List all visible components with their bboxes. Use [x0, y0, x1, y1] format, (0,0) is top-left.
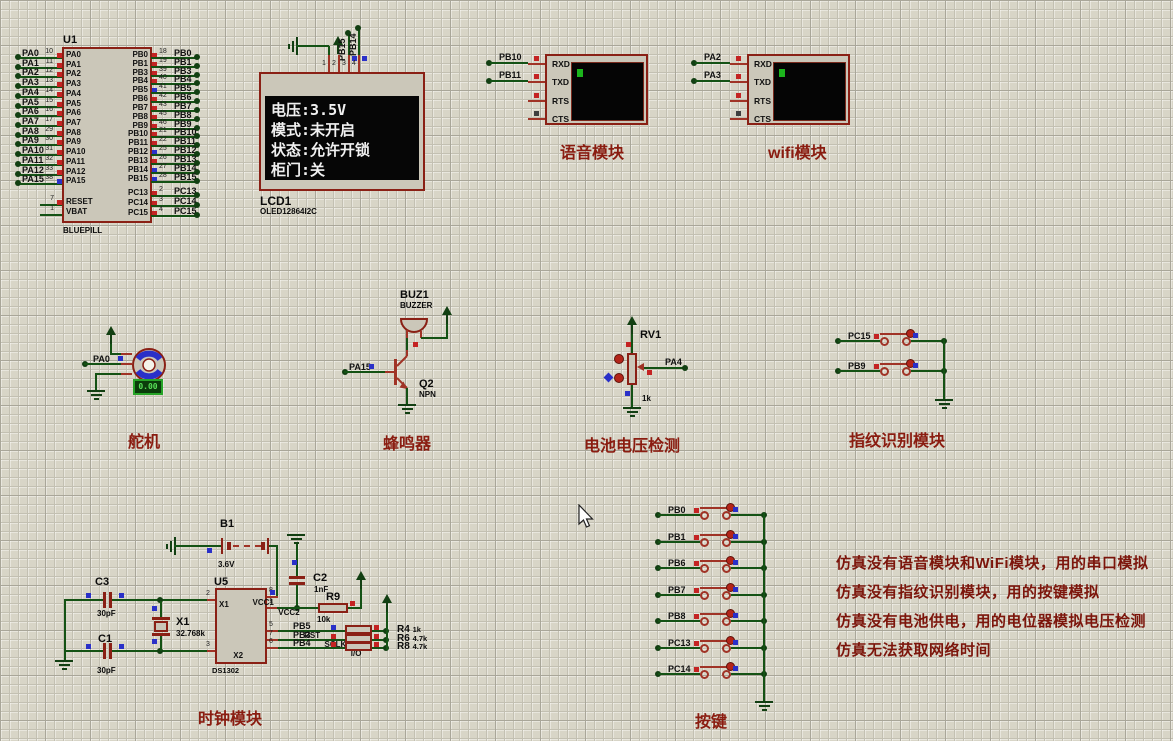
wire: [731, 567, 765, 569]
pin-state-square: [57, 160, 62, 165]
pin-name: RXD: [754, 59, 772, 69]
pin-state-square: [57, 72, 62, 77]
pin-state-square: [733, 587, 738, 592]
pin-state-square: [57, 82, 62, 87]
wire: [731, 647, 765, 649]
pin-state-square: [57, 121, 62, 126]
net-label: PB11: [499, 70, 521, 80]
pin-state-square: [57, 170, 62, 175]
pin-stub: [730, 63, 747, 65]
c3-ref: C3: [95, 576, 109, 588]
fingerprint-key-rows: PC15 PB9: [838, 329, 948, 389]
pin-number: 39: [159, 66, 167, 73]
mouse-cursor: [578, 504, 595, 529]
net-label: PA2: [704, 52, 721, 62]
pin-number: 5: [269, 621, 273, 628]
wire: [658, 567, 700, 569]
note-line: 仿真没有指纹识别模块，用的按键模拟: [836, 581, 1149, 610]
wire: [64, 599, 66, 652]
pin-name: TXD: [754, 77, 771, 87]
pin-state-square: [331, 634, 336, 639]
wire: [64, 599, 104, 601]
pin-number: 33: [45, 165, 53, 172]
pin-number: 22: [159, 136, 167, 143]
wire: [658, 514, 700, 516]
pin-state-square: [534, 74, 539, 79]
pin-state-square: [86, 644, 91, 649]
pin-state-square: [331, 625, 336, 630]
net-label: PB4: [293, 638, 311, 648]
pin-name: PB11: [106, 138, 148, 147]
pin-state-square: [86, 593, 91, 598]
section-title: wifi模块: [768, 139, 827, 163]
wire: [658, 541, 700, 543]
pin-name: RESET: [66, 197, 106, 207]
net-label: PB10: [499, 52, 522, 62]
terminal-pin-row[interactable]: RTS: [528, 91, 588, 109]
button-terminal: [880, 367, 889, 376]
pin-name: PB4: [106, 76, 148, 85]
wire: [160, 636, 162, 651]
push-button-row: PB1: [658, 530, 768, 557]
pin-number: 14: [45, 87, 53, 94]
pin-state-square: [57, 102, 62, 107]
u1-right-pin-row[interactable]: 28 PB15: [152, 174, 198, 183]
pin-name: PB10: [106, 129, 148, 138]
button-terminal: [722, 617, 731, 626]
wire: [278, 639, 345, 641]
button-terminal: [722, 644, 731, 653]
wire: [278, 630, 345, 632]
u1-power-pin-rows: 7 1: [40, 197, 62, 217]
wire: [296, 45, 329, 47]
pin-state-square: [152, 639, 157, 644]
pin-name: PA4: [66, 89, 106, 99]
pin-state-square: [57, 111, 62, 116]
pin-number: 27: [159, 163, 167, 170]
pot-marker: [604, 373, 614, 383]
pin-state-square: [694, 561, 699, 566]
wire: [695, 80, 730, 82]
terminal-pin-row[interactable]: RXD: [730, 54, 790, 72]
pin-number: 45: [159, 110, 167, 117]
pin-name: PB3: [106, 68, 148, 77]
pin-number: 3: [159, 196, 163, 203]
button-terminal: [722, 538, 731, 547]
pin-stub: [348, 55, 350, 72]
ground-symbol: [753, 701, 775, 713]
r9-ref: R9: [326, 591, 340, 603]
pin-state-square: [57, 92, 62, 97]
pin-name: PA9: [66, 137, 106, 147]
wire: [386, 612, 388, 650]
button-terminal: [902, 367, 911, 376]
pot-decrease-knob[interactable]: [614, 373, 624, 383]
net-label: PB14: [348, 28, 358, 56]
pin-state-square: [534, 56, 539, 61]
battery-plate[interactable]: [261, 542, 265, 550]
push-button-row: PC13: [658, 636, 768, 663]
pin-state-square: [733, 507, 738, 512]
pin-stub: [267, 647, 278, 649]
pin-name: PB5: [106, 85, 148, 94]
pin-number: 32: [45, 155, 53, 162]
pot-value: 1k: [642, 394, 651, 403]
pin-state-square: [369, 364, 374, 369]
wire: [406, 396, 408, 404]
pin-name: PB14: [106, 165, 148, 174]
pin-number: 12: [45, 67, 53, 74]
pin-number: 28: [159, 172, 167, 179]
push-button-row: PB7: [658, 583, 768, 610]
pin-number: 2: [206, 590, 210, 597]
wire: [360, 589, 362, 609]
pin-state-square: [733, 534, 738, 539]
section-title: 指纹识别模块: [849, 427, 945, 451]
u1-ref: U1: [63, 34, 77, 46]
net-label: PA0: [93, 354, 110, 364]
lcd-screen-line: 电压:3.5V: [271, 99, 370, 119]
section-title: 舵机: [128, 428, 160, 452]
xtal-ref: X1: [176, 616, 189, 628]
pin-name: PC15: [106, 208, 148, 218]
wire: [151, 181, 196, 183]
pin-name: CTS: [552, 114, 569, 124]
resistor-label: R8 4.7k: [397, 641, 427, 652]
button-terminal: [700, 617, 709, 626]
pin-state-square: [57, 53, 62, 58]
simulation-notes: 仿真没有语音模块和WiFi模块，用的串口模拟仿真没有指纹识别模块，用的按键模拟仿…: [836, 552, 1149, 668]
pin-number: 26: [159, 154, 167, 161]
button-terminal: [700, 511, 709, 520]
pin-state-square: [292, 560, 297, 565]
button-terminal: [722, 511, 731, 520]
wire: [763, 513, 765, 701]
pin-state-square: [736, 111, 741, 116]
transistor-value: NPN: [419, 390, 436, 399]
push-button-row: PB0: [658, 503, 768, 530]
wire-junction-dot: [194, 212, 200, 218]
section-title: 语音模块: [560, 139, 624, 163]
c1-value: 30pF: [97, 666, 116, 675]
net-label: PA4: [665, 357, 682, 367]
pin-number: 31: [45, 145, 53, 152]
lcd-screen-lines: 电压:3.5V模式:未开启状态:允许开锁柜门:关: [271, 99, 370, 179]
pin-number: 3: [342, 60, 346, 67]
button-terminal: [700, 670, 709, 679]
pin-name: PB12: [106, 147, 148, 156]
pin-number: 29: [45, 126, 53, 133]
pin-number: 7: [50, 195, 54, 202]
pin-number: 30: [45, 135, 53, 142]
terminal-pin-row[interactable]: CTS: [730, 109, 790, 127]
pin-state-square: [694, 667, 699, 672]
pin-number: 4: [352, 60, 356, 67]
pin-state-square: [57, 210, 62, 215]
terminal-pin-rows: RXD TXD RTS CTS: [528, 54, 588, 128]
push-button-row: PC14: [658, 662, 768, 689]
ground-symbol: [396, 404, 418, 416]
ground-symbol: [933, 399, 955, 411]
ground-symbol: [85, 390, 107, 402]
push-button-row: PB8: [658, 609, 768, 636]
pin-number: 17: [45, 116, 53, 123]
pin-stub: [730, 118, 747, 120]
pin-stub: [528, 81, 545, 83]
pin-state-square: [57, 179, 62, 184]
wire: [644, 367, 684, 369]
pin-state-square: [119, 593, 124, 598]
lcd-screen-line: 状态:允许开锁: [271, 139, 370, 159]
push-button-row: PB9: [838, 359, 948, 389]
wire: [490, 62, 528, 64]
pin-number: 2: [332, 60, 336, 67]
wire: [731, 594, 765, 596]
pin-state-square: [57, 131, 62, 136]
wire: [731, 541, 765, 543]
pin-stub: [528, 100, 545, 102]
pin-state-square: [694, 508, 699, 513]
lcd-value: OLED12864I2C: [260, 207, 317, 216]
capacitor-plate[interactable]: [103, 592, 106, 608]
button-terminal: [722, 564, 731, 573]
section-title: 电池电压检测: [584, 432, 680, 456]
section-title: 按键: [695, 708, 727, 732]
pin-state-square: [57, 63, 62, 68]
pin-number: 42: [159, 92, 167, 99]
lcd-ref: LCD1: [260, 194, 291, 208]
pin-state-square: [733, 666, 738, 671]
pin-name: PB0: [106, 50, 148, 59]
wire: [658, 620, 700, 622]
pin-name: PA3: [66, 79, 106, 89]
wire: [838, 370, 880, 372]
pin-name: RXD: [552, 59, 570, 69]
wire: [943, 339, 945, 399]
capacitor-plate[interactable]: [289, 576, 305, 579]
button-terminal: [722, 670, 731, 679]
pin-name: PA10: [66, 147, 106, 157]
net-label: PA15: [349, 362, 371, 372]
terminal-pin-row[interactable]: TXD: [528, 72, 588, 90]
c1-ref: C1: [98, 633, 112, 645]
pin-number: 10: [45, 48, 53, 55]
pin-state-square: [57, 150, 62, 155]
note-line: 仿真没有语音模块和WiFi模块，用的串口模拟: [836, 552, 1149, 581]
u1-left-pin-row[interactable]: PA15 38: [18, 176, 62, 186]
power-arrow: [380, 594, 394, 612]
pin-stub: [207, 650, 215, 652]
pin-state-square: [874, 364, 879, 369]
button-terminal: [880, 337, 889, 346]
pin-name: PA0: [66, 50, 106, 60]
button-terminal: [700, 538, 709, 547]
pin-state-square: [694, 614, 699, 619]
wire: [911, 370, 945, 372]
pin-number: 11: [46, 58, 53, 65]
u5-ref: U5: [214, 576, 228, 588]
pin-name: PB8: [106, 112, 148, 121]
pin-name: VCC2: [278, 608, 299, 617]
battery-value: 3.6V: [218, 560, 234, 569]
battery-plate[interactable]: [227, 542, 231, 550]
pin-name: X1: [219, 600, 229, 609]
u1-left-pin-names: PA0PA1PA2PA3PA4PA5PA6PA7PA8PA9PA10PA11PA…: [66, 50, 106, 186]
battery-ref: B1: [220, 518, 234, 530]
terminal-pin-row[interactable]: RXD: [528, 54, 588, 72]
potentiometer-body[interactable]: [627, 353, 637, 385]
resistor-body[interactable]: [318, 603, 348, 613]
pin-stub: [358, 55, 360, 72]
capacitor-plate[interactable]: [103, 643, 106, 659]
wire: [278, 647, 345, 649]
wire: [174, 545, 221, 547]
wire: [328, 46, 330, 55]
wire: [421, 337, 448, 339]
pin-number: 1: [269, 598, 273, 605]
pin-state-square: [270, 590, 275, 595]
wire: [277, 607, 318, 609]
terminal-pin-row[interactable]: TXD: [730, 72, 790, 90]
pin-name: RTS: [754, 96, 771, 106]
pin-number: 19: [159, 57, 167, 64]
pin-stub: [328, 55, 330, 72]
pin-state-square: [207, 548, 212, 553]
pin-name: PA12: [66, 167, 106, 177]
note-line: 仿真无法获取网络时间: [836, 639, 1149, 668]
pin-number: 41: [159, 83, 167, 90]
net-label: PA3: [704, 70, 721, 80]
u1-power-pin-row[interactable]: 1: [40, 207, 62, 217]
pin-number: 15: [45, 97, 53, 104]
pin-state-square: [694, 535, 699, 540]
button-terminal: [722, 591, 731, 600]
pin-name: PC13: [106, 188, 148, 198]
wire: [446, 324, 448, 339]
crystal-plate[interactable]: [152, 617, 170, 620]
u1-value: BLUEPILL: [63, 226, 102, 235]
pin-state-square: [736, 56, 741, 61]
wire: [631, 385, 633, 407]
crystal-body[interactable]: [154, 621, 168, 632]
buzzer-symbol[interactable]: [399, 316, 429, 334]
pin-name: VBAT: [66, 207, 106, 217]
pin-name: PB1: [106, 59, 148, 68]
c2-ref: C2: [313, 572, 327, 584]
terminal-pin-row[interactable]: CTS: [528, 109, 588, 127]
pin-number: 1: [50, 205, 54, 212]
button-terminal: [700, 644, 709, 653]
npn-transistor[interactable]: [385, 350, 411, 396]
section-title: 蜂鸣器: [383, 430, 431, 454]
pin-name: CTS: [754, 114, 771, 124]
battery-plate[interactable]: [221, 538, 223, 554]
pin-stub: [338, 55, 340, 72]
pin-number: 7: [269, 630, 273, 637]
wire: [911, 340, 945, 342]
resistor-body[interactable]: [345, 642, 372, 651]
wire: [658, 673, 700, 675]
pin-state-square: [733, 560, 738, 565]
pin-state-square: [733, 640, 738, 645]
u1-right-pin-rows: 18 PB0 19 PB1 39 PB3: [152, 50, 198, 182]
power-arrow: [625, 316, 639, 334]
pin-number: 38: [45, 174, 53, 181]
wire: [95, 373, 97, 390]
pin-stub: [528, 63, 545, 65]
pin-state-square: [152, 606, 157, 611]
u5-value: DS1302: [212, 666, 239, 675]
terminal-pin-row[interactable]: RTS: [730, 91, 790, 109]
u1-pc-pin-rows: 2 PC13 3 PC14 4 PC15: [152, 188, 198, 218]
pin-name: PB7: [106, 103, 148, 112]
pin-name: PB15: [106, 174, 148, 183]
pin-number: 3: [206, 641, 210, 648]
ds1302-net-rows: 5 PB5 R4 1k 7 PB3: [267, 624, 442, 650]
pin-state-square: [913, 333, 918, 338]
pin-state-square: [331, 642, 336, 647]
servo-motor[interactable]: [131, 347, 167, 383]
resistor-value: 4.7k: [413, 642, 428, 651]
servo-angle-display: 0.00: [133, 379, 163, 395]
pin-state-square: [647, 370, 652, 375]
pot-increase-knob[interactable]: [614, 354, 624, 364]
wire: [276, 545, 278, 598]
pin-state-square: [413, 342, 418, 347]
pin-state-square: [694, 588, 699, 593]
ground-symbol: [53, 660, 75, 672]
pin-name: RTS: [552, 96, 569, 106]
wire: [731, 673, 765, 675]
pin-state-square: [913, 363, 918, 368]
lcd-screen-line: 柜门:关: [271, 159, 370, 179]
pin-number: 40: [159, 74, 167, 81]
pin-number: 43: [159, 101, 167, 108]
pin-state-square: [736, 93, 741, 98]
terminal-pin-rows: RXD TXD RTS CTS: [730, 54, 790, 128]
u1-right-pin-names: PB0PB1PB3PB4PB5PB6PB7PB8PB9PB10PB11PB12P…: [106, 50, 148, 182]
pin-number: 25: [159, 145, 167, 152]
schematic-canvas[interactable]: U1 BLUEPILL PA0 10 PA1 11 PA2: [0, 0, 1173, 741]
u1-pc-pin-row[interactable]: 4 PC15: [152, 208, 198, 218]
power-arrow: [104, 326, 118, 344]
button-terminal: [700, 591, 709, 600]
pin-stub: [730, 81, 747, 83]
transistor-ref: Q2: [419, 378, 434, 390]
pin-state-square: [534, 93, 539, 98]
button-terminal: [902, 337, 911, 346]
pin-number: 21: [159, 127, 167, 134]
pin-state-square: [694, 641, 699, 646]
ground-symbol: [621, 407, 643, 419]
resistor-ref: R8: [397, 641, 410, 652]
pin-name: X2: [233, 651, 243, 660]
pin-state-square: [534, 111, 539, 116]
pin-stub: [730, 100, 747, 102]
pin-name: TXD: [552, 77, 569, 87]
pin-number: 13: [45, 77, 53, 84]
wire: [731, 620, 765, 622]
xtal-value: 32.768k: [176, 629, 205, 638]
pin-number: 4: [159, 206, 163, 213]
pin-state-square: [625, 391, 630, 396]
pin-state-square: [626, 342, 631, 347]
pullup-row: 6 PB4 R8 4.7k: [267, 641, 442, 650]
pin-name: PA1: [66, 60, 106, 70]
pin-name: PA5: [66, 99, 106, 109]
pin-name: PA15: [66, 176, 106, 186]
pin-state-square: [736, 74, 741, 79]
